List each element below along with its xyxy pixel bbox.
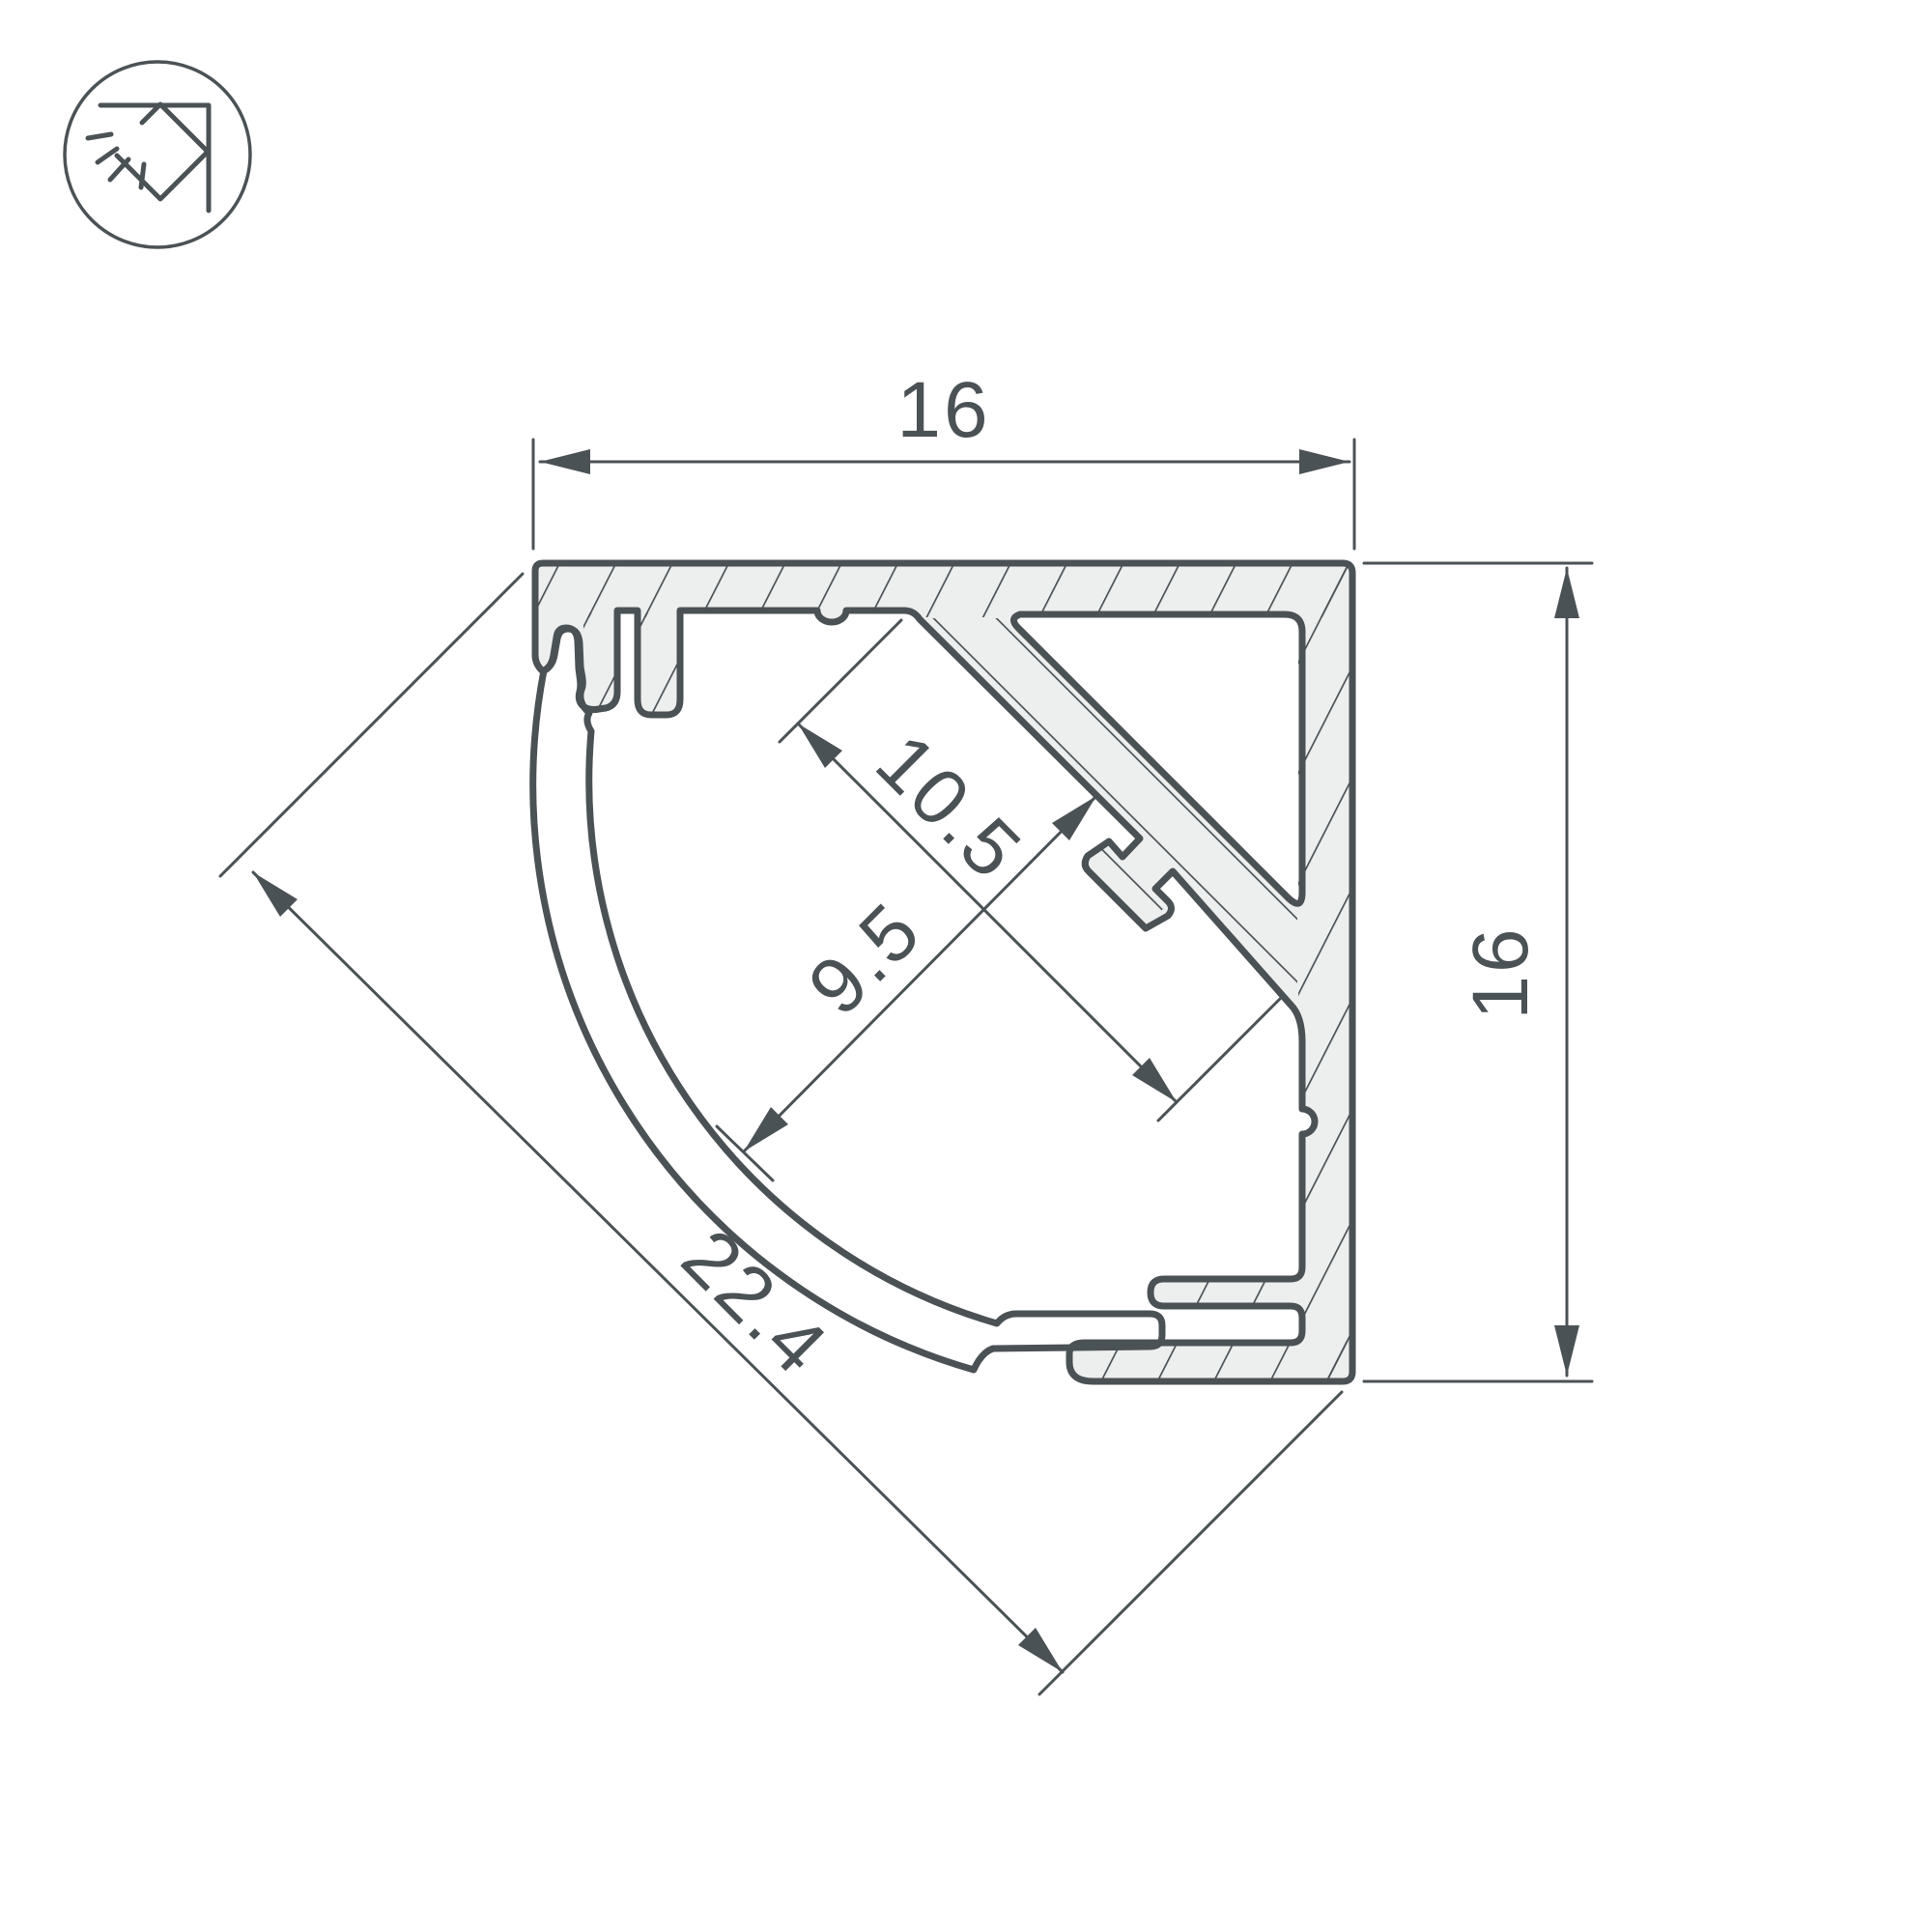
icon-light-rays: [88, 134, 144, 187]
dimension-annotations: [220, 440, 1592, 1694]
dim-cavity-depth: [717, 796, 1096, 1180]
label-cavity-depth: 9.5: [792, 886, 938, 1032]
icon-profile-diamond: [117, 104, 208, 199]
drawing-canvas: 16 16 22.4 10.5 9.5: [0, 0, 1932, 1932]
hatching: [529, 558, 1356, 1385]
corner-mount-light-icon: [65, 62, 250, 247]
icon-circle: [65, 62, 250, 247]
label-top-width: 16: [896, 366, 990, 454]
label-led-shelf: 10.5: [860, 718, 1039, 897]
label-right-height: 16: [1457, 925, 1545, 1019]
aluminum-profile-body: [529, 558, 1356, 1385]
profile-cross-section-drawing: 16 16 22.4 10.5 9.5: [0, 0, 1932, 1932]
dim-top-width: [533, 440, 1354, 549]
